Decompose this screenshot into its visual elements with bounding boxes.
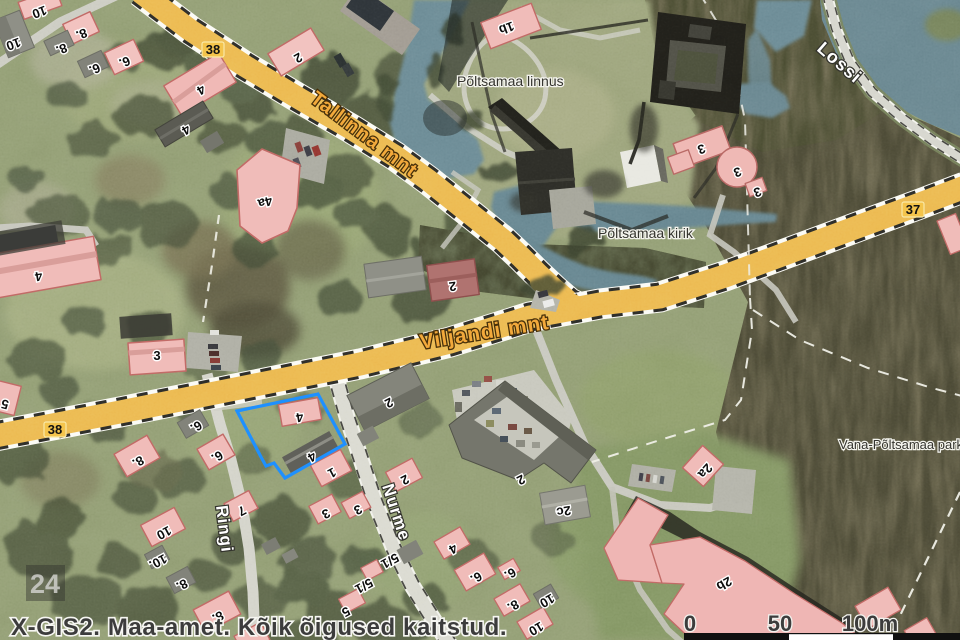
svg-text:2c: 2c xyxy=(555,503,572,520)
svg-text:Põltsamaa linnus: Põltsamaa linnus xyxy=(457,73,564,89)
svg-text:Vana-Põltsamaa park: Vana-Põltsamaa park xyxy=(839,437,960,452)
svg-text:24: 24 xyxy=(30,569,60,599)
svg-text:37: 37 xyxy=(906,202,920,217)
svg-text:38: 38 xyxy=(48,422,62,437)
svg-text:Põltsamaa kirik: Põltsamaa kirik xyxy=(598,225,694,241)
svg-text:0: 0 xyxy=(684,611,696,636)
svg-text:100m: 100m xyxy=(842,611,898,636)
svg-text:3: 3 xyxy=(153,348,160,363)
svg-text:38: 38 xyxy=(206,42,220,57)
svg-text:50: 50 xyxy=(768,611,792,636)
svg-text:X-GIS2. Maa-amet. Kõik õigused: X-GIS2. Maa-amet. Kõik õigused kaitstud. xyxy=(11,614,507,640)
